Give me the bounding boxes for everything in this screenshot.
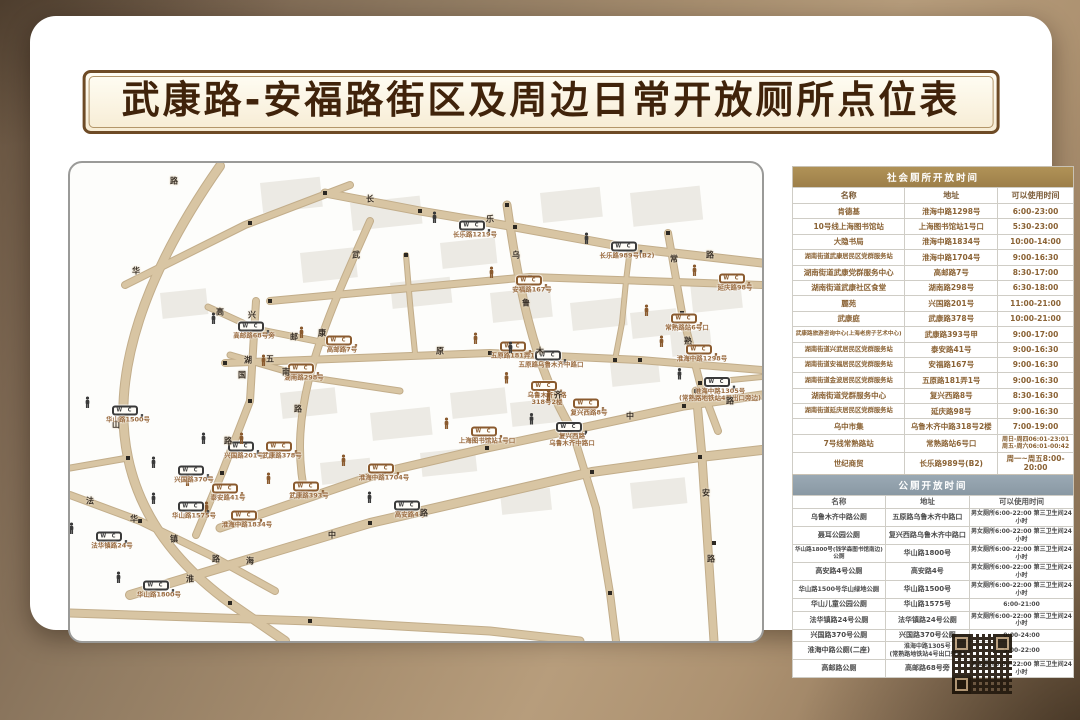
social-table-title: 社会厕所开放时间 [792,166,1074,187]
table-row: 7号线常熟路站常熟路站6号口周日-周四06:01-23:01 周五-周六06:0… [793,434,1074,452]
wc-point-label: 兴国路370号 [149,477,239,484]
table-cell: 湖南路298号 [905,280,998,295]
wc-point-label: 高邮路7号 [297,347,387,354]
table-cell: 男女厕所6:00-22:00 第三卫生间24小时 [970,545,1074,563]
table-row: 湖南街道武康社区食堂湖南路298号6:30-18:00 [793,280,1074,295]
wc-point: W C,长乐路1219号 [430,212,520,239]
table-cell: 6:30-18:00 [998,280,1074,295]
wc-icon: W C [112,406,139,416]
table-cell: 11:00-21:00 [998,296,1074,311]
column-header: 地址 [905,188,998,204]
table-cell: 9:00-16:30 [998,342,1074,357]
table-cell: 湖南街道兴武居民区党群服务站 [793,342,905,357]
wc-point: W C,华山路1575号 [149,493,239,520]
table-row: 兴国路370号公厕兴国路370号公厕0:00-24:00 [793,629,1074,642]
public-toilet-table: 公厕开放时间 名称地址可以使用时间乌鲁木齐中路公厕五原路乌鲁木齐中路口男女厕所6… [792,474,1074,678]
table-cell: 男女厕所6:00-22:00 第三卫生间24小时 [970,563,1074,581]
table-cell: 男女厕所6:00-22:00 第三卫生间24小时 [970,509,1074,527]
wc-point: W C,高安路4号 [365,492,455,519]
table-cell: 复兴西路乌鲁木齐中路口 [885,527,969,545]
table-cell: 乌鲁木齐中路公厕 [793,509,886,527]
wc-icon: W C [96,532,123,542]
table-cell: 9:00-16:30 [998,404,1074,419]
column-header: 名称 [793,188,905,204]
wc-icon: W C [178,502,205,512]
table-row: 肯德基淮海中路1298号6:00-23:00 [793,204,1074,219]
table-row: 湖南街道兴武居民区党群服务站泰安路41号9:00-16:30 [793,342,1074,357]
qr-code [952,634,1012,694]
wc-point-label: 五原路乌鲁木齐中路口 [506,362,596,369]
table-cell: 武康路393号甲 [905,327,998,342]
table-cell: 大隐书局 [793,234,905,249]
table-row: 高邮路公厕高邮路68号旁男女厕所6:00-22:00 第三卫生间24小时 [793,660,1074,678]
table-cell: 淮海中路公厕(二座) [793,642,886,660]
wc-point: W C,法华镇路24号 [68,523,157,550]
table-row: 华山路1500号华山绿地公厕华山路1500号男女厕所6:00-22:00 第三卫… [793,581,1074,599]
wc-point-label: 高邮路68号旁 [209,333,299,340]
person-icon [150,493,157,505]
person-icon [528,413,535,425]
table-cell: 法华镇路24号公厕 [885,611,969,629]
table-cell: 湖南街道延庆居民区党群服务站 [793,404,905,419]
person-icon [150,457,157,469]
table-cell: 华山儿童公园公厕 [793,599,886,612]
wc-icon: W C [556,422,583,432]
table-cell: 上海图书馆站1号口 [905,219,998,234]
table-cell: 9:00-16:30 [998,373,1074,388]
table-cell: 湖南街道武康党群服务中心 [793,265,905,280]
wc-point: W C,华山路1800号 [114,572,204,599]
table-cell: 华山路1500号 [885,581,969,599]
wc-point-label: 淮海中路1305号 (常熟路地铁站4号出口旁边) [675,388,764,402]
wc-point-label: 武康路393号 [264,493,354,500]
wc-icon: W C [535,351,562,361]
wc-point: W C,长乐路989号(B2) [582,233,672,260]
table-cell: 法华镇路24号公厕 [793,611,886,629]
table-cell: 高邮路7号 [905,265,998,280]
person-icon [507,342,514,354]
table-cell: 周日-周四06:01-23:01 周五-周六06:01-00:42 [998,434,1074,452]
wc-point: W C,华山路1500号 [83,397,173,424]
social-table-grid: 名称地址可以使用时间肯德基淮海中路1298号6:00-23:0010号线上海图书… [792,187,1074,496]
person-icon [84,397,91,409]
table-row: 华山路1800号(钱学森图书馆南边)公厕华山路1800号男女厕所6:00-22:… [793,545,1074,563]
qr-finder-icon [993,634,1012,653]
wc-point: W C,延庆路98号 [690,265,764,292]
table-cell: 9:00-17:00 [998,327,1074,342]
table-cell: 湖南街道安福居民区党群服务站 [793,357,905,372]
wc-point: W C,安福路167号 [487,267,577,294]
wc-point-label: 法华镇路24号 [68,543,157,550]
table-cell: 7:00-19:00 [998,419,1074,434]
table-cell: 5:30-23:00 [998,219,1074,234]
table-cell: 世纪商贸 [793,452,905,474]
wc-point-label: 湖南路298号 [259,375,349,382]
person-icon [366,492,373,504]
table-row: 湖南街道金波居民区党群服务站五原路181弄1号9:00-16:30 [793,373,1074,388]
wc-icon: W C [394,501,421,511]
table-cell: 淮海中路1704号 [905,250,998,265]
wc-point-label: 延庆路98号 [690,285,764,292]
wc-point: W C,淮海中路1298号 [657,336,747,363]
wc-point-label: 复兴西路 乌鲁木齐中路口 [527,433,617,447]
wc-point: W C,常熟路站6号口 [642,305,732,332]
wc-point: W C,淮海中路1305号 (常熟路地铁站4号出口旁边) [675,368,764,402]
table-cell: 华山路1800号 [885,545,969,563]
wc-icon: W C [178,466,205,476]
table-row: 大隐书局淮海中路1834号10:00-14:00 [793,234,1074,249]
table-row: 聂耳公园公厕复兴西路乌鲁木齐中路口男女厕所6:00-22:00 第三卫生间24小… [793,527,1074,545]
wc-icon: W C [611,242,638,252]
wc-icon: W C [459,221,486,231]
table-cell: 复兴西路8号 [905,388,998,403]
person-icon [200,433,207,445]
table-cell: 湖南街道武康居民区党群服务站 [793,250,905,265]
wc-icon: W C [719,274,746,284]
wc-icon: W C [573,399,600,409]
social-toilet-table: 社会厕所开放时间 名称地址可以使用时间肯德基淮海中路1298号6:00-23:0… [792,166,1074,496]
table-cell: 淮海中路1834号 [905,234,998,249]
table-cell: 9:00-16:30 [998,250,1074,265]
table-row: 麗苑兴国路201号11:00-21:00 [793,296,1074,311]
wc-point: W C,高邮路68号旁 [209,313,299,340]
social-table-body: 名称地址可以使用时间肯德基淮海中路1298号6:00-23:0010号线上海图书… [792,187,1074,496]
person-icon [545,390,552,402]
wc-icon: W C [516,276,543,286]
table-cell: 7号线常熟路站 [793,434,905,452]
wc-point-label: 淮海中路1834号 [202,522,292,529]
table-cell: 8:30-17:00 [998,265,1074,280]
wc-icon: W C [288,364,315,374]
wc-point: W C,高邮路7号 [297,327,387,354]
table-row: 乌鲁木齐中路公厕五原路乌鲁木齐中路口男女厕所6:00-22:00 第三卫生间24… [793,509,1074,527]
table-row: 湖南街道武康居民区党群服务站淮海中路1704号9:00-16:30 [793,250,1074,265]
wc-point: W C,上海图书馆站1号口 [442,418,532,445]
column-header: 地址 [885,496,969,509]
person-icon [298,327,305,339]
wc-icon: W C [471,427,498,437]
person-icon [658,336,665,348]
wc-icon: W C [326,336,353,346]
table-cell: 乌鲁木齐中路318号2楼 [905,419,998,434]
wc-icon: W C [238,322,265,332]
table-row: 乌中市集乌鲁木齐中路318号2楼7:00-19:00 [793,419,1074,434]
table-cell: 麗苑 [793,296,905,311]
table-row: 湖南街道延庆居民区党群服务站延庆路98号9:00-16:30 [793,404,1074,419]
poster-card: 武康路-安福路街区及周边日常开放厕所点位表 W C,长乐路1219号 W C,长… [30,16,1052,630]
table-cell: 乌中市集 [793,419,905,434]
table-cell: 长乐路989号(B2) [905,452,998,474]
person-icon [260,355,267,367]
table-row: 武康庭武康路378号10:00-21:00 [793,311,1074,326]
table-cell: 华山路1575号 [885,599,969,612]
person-icon [68,523,75,535]
wc-icon: W C [704,377,731,387]
table-cell: 周一~周五8:00-20:00 [998,452,1074,474]
person-icon [643,305,650,317]
table-row: 武康路旅游咨询中心(上海老房子艺术中心)武康路393号甲9:00-17:00 [793,327,1074,342]
public-table-grid: 名称地址可以使用时间乌鲁木齐中路公厕五原路乌鲁木齐中路口男女厕所6:00-22:… [792,495,1074,678]
person-icon [431,212,438,224]
public-table-title: 公厕开放时间 [792,474,1074,495]
qr-finder-icon [952,675,971,694]
table-cell: 武康庭 [793,311,905,326]
wc-icon: W C [686,345,713,355]
wc-point-label: 长乐路989号(B2) [582,253,672,260]
wc-point: W C,复兴西路 乌鲁木齐中路口 [527,413,617,447]
wc-point: W C,武康路378号 [237,433,327,460]
table-cell: 泰安路41号 [905,342,998,357]
wc-point-label: 安福路167号 [487,287,577,294]
table-cell: 延庆路98号 [905,404,998,419]
wc-icon: W C [293,482,320,492]
table-cell: 湖南街道党群服务中心 [793,388,905,403]
person-icon [472,333,479,345]
table-row: 华山儿童公园公厕华山路1575号6:00-21:00 [793,599,1074,612]
table-cell: 10:00-21:00 [998,311,1074,326]
column-header: 可以使用时间 [998,188,1074,204]
table-cell: 10:00-14:00 [998,234,1074,249]
table-cell: 6:00-21:00 [970,599,1074,612]
table-cell: 武康路378号 [905,311,998,326]
person-icon [238,433,245,445]
wc-icon: W C [266,442,293,452]
table-cell: 淮海中路1298号 [905,204,998,219]
table-cell: 武康路旅游咨询中心(上海老房子艺术中心) [793,327,905,342]
table-cell: 湖南街道金波居民区党群服务站 [793,373,905,388]
table-cell: 常熟路站6号口 [905,434,998,452]
table-row: 法华镇路24号公厕法华镇路24号公厕男女厕所6:00-22:00 第三卫生间24… [793,611,1074,629]
table-cell: 聂耳公园公厕 [793,527,886,545]
wc-point: W C,兴国路370号 [149,457,239,484]
table-cell: 9:00-16:30 [998,357,1074,372]
table-row: 高安路4号公厕高安路4号男女厕所6:00-22:00 第三卫生间24小时 [793,563,1074,581]
table-cell: 肯德基 [793,204,905,219]
page-title-plaque: 武康路-安福路街区及周边日常开放厕所点位表 [83,70,1000,134]
wc-point-label: 武康路378号 [237,453,327,460]
table-cell: 兴国路201号 [905,296,998,311]
wc-point-label: 华山路1500号 [83,417,173,424]
table-row: 淮海中路公厕(二座)淮海中路1305号 (常熟路地铁站4号出口旁边)5:00-2… [793,642,1074,660]
page-title: 武康路-安福路街区及周边日常开放厕所点位表 [122,80,961,122]
person-icon [443,418,450,430]
wc-point-label: 长乐路1219号 [430,232,520,239]
person-icon [488,267,495,279]
table-cell: 高邮路公厕 [793,660,886,678]
person-icon [691,265,698,277]
table-row: 湖南街道武康党群服务中心高邮路7号8:30-17:00 [793,265,1074,280]
table-row: 10号线上海图书馆站上海图书馆站1号口5:30-23:00 [793,219,1074,234]
table-row: 湖南街道党群服务中心复兴西路8号8:30-16:30 [793,388,1074,403]
wc-point-label: 高安路4号 [365,512,455,519]
wc-point-label: 淮海中路1298号 [657,356,747,363]
table-cell: 男女厕所6:00-22:00 第三卫生间24小时 [970,527,1074,545]
wc-point: W C,五原路乌鲁木齐中路口 [506,342,596,369]
table-cell: 男女厕所6:00-22:00 第三卫生间24小时 [970,611,1074,629]
table-cell: 五原路乌鲁木齐中路口 [885,509,969,527]
table-cell: 华山路1500号华山绿地公厕 [793,581,886,599]
person-icon [265,473,272,485]
table-cell: 8:30-16:30 [998,388,1074,403]
wc-icon: W C [143,581,170,591]
person-icon [340,455,347,467]
table-cell: 华山路1800号(钱学森图书馆南边)公厕 [793,545,886,563]
wc-point: W C,武康路393号 [264,473,354,500]
table-cell: 男女厕所6:00-22:00 第三卫生间24小时 [970,581,1074,599]
column-header: 可以使用时间 [970,496,1074,509]
table-cell: 五原路181弄1号 [905,373,998,388]
person-icon [210,313,217,325]
table-row: 湖南街道安福居民区党群服务站安福路167号9:00-16:30 [793,357,1074,372]
table-cell: 高安路4号 [885,563,969,581]
wc-point-label: 上海图书馆站1号口 [442,438,532,445]
table-cell: 湖南街道武康社区食堂 [793,280,905,295]
map-panel: W C,长乐路1219号 W C,长乐路989号(B2) W C,安福路167号… [68,161,764,643]
column-header: 名称 [793,496,886,509]
table-row: 世纪商贸长乐路989号(B2)周一~周五8:00-20:00 [793,452,1074,474]
wc-point-label: 华山路1800号 [114,592,204,599]
wc-icon: W C [368,464,395,474]
person-icon [676,368,683,380]
wc-icon: W C [671,314,698,324]
table-cell: 安福路167号 [905,357,998,372]
public-table-body: 名称地址可以使用时间乌鲁木齐中路公厕五原路乌鲁木齐中路口男女厕所6:00-22:… [792,495,1074,678]
qr-finder-icon [952,634,971,653]
person-icon [115,572,122,584]
table-cell: 高安路4号公厕 [793,563,886,581]
person-icon [583,233,590,245]
wc-point: W C,湖南路298号 [259,355,349,382]
person-icon [503,372,510,384]
wc-point-label: 常熟路站6号口 [642,325,732,332]
wc-point-label: 华山路1575号 [149,513,239,520]
table-cell: 10号线上海图书馆站 [793,219,905,234]
table-cell: 兴国路370号公厕 [793,629,886,642]
table-cell: 6:00-23:00 [998,204,1074,219]
